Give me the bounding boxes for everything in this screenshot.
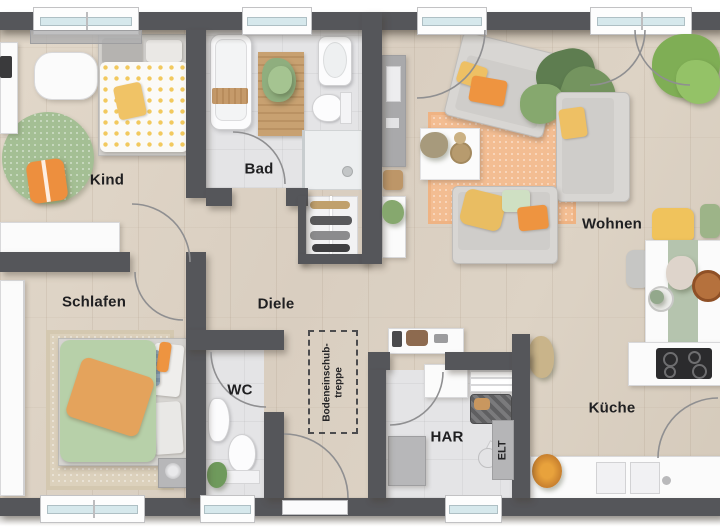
shoes-row-3	[310, 231, 350, 240]
entry-door-leaf	[282, 500, 348, 515]
wall-niche-left	[298, 196, 306, 262]
wall-kind-bad	[186, 30, 206, 198]
bad-shower-glass	[302, 130, 305, 188]
bad-shower-drain	[342, 166, 353, 177]
window-wohnen-left-glass	[422, 17, 482, 26]
label-kind: Kind	[90, 172, 124, 189]
wall-bad-wohnen	[362, 12, 382, 264]
label-kueche: Küche	[589, 400, 636, 417]
kitchen-dried-plant	[528, 336, 554, 378]
bathtub-caddy	[212, 88, 248, 104]
dining-chair-yellow-top	[652, 208, 694, 240]
burner-4	[692, 364, 707, 379]
window-wohnen-left	[417, 7, 487, 35]
window-bad	[242, 7, 312, 35]
wall-wc-right-lower	[264, 412, 284, 498]
corner-plant-2	[676, 60, 720, 104]
centerpiece-bowl	[692, 270, 720, 302]
elt-panel: ELT	[492, 420, 514, 480]
shoes-row-2	[310, 216, 352, 225]
bad-towel-top	[268, 66, 292, 94]
kitchen-sink-basin-left	[596, 462, 626, 494]
window-kind-shade	[30, 30, 142, 44]
hall-shelf-plant	[382, 200, 404, 224]
attic-stairs-line2: treppe	[333, 343, 345, 421]
wall-wc-top	[186, 330, 284, 350]
window-har	[445, 495, 502, 523]
window-wc-glass	[204, 505, 251, 514]
har-washer	[388, 436, 426, 486]
label-diele: Diele	[258, 296, 295, 313]
shoes-row-1	[310, 201, 350, 209]
kind-sideboard	[0, 222, 120, 256]
elt-label: ELT	[497, 440, 510, 460]
label-wohnen: Wohnen	[582, 216, 642, 233]
bad-shower-tray	[304, 130, 362, 190]
hall-stool-wood	[383, 170, 403, 190]
window-wc	[200, 495, 255, 523]
window-schlafen	[40, 495, 145, 523]
window-har-glass	[449, 505, 497, 514]
attic-stairs-line1: Bodeneinschub-	[322, 343, 334, 421]
nightstand-lamp	[165, 463, 181, 479]
console-item-gray	[434, 334, 448, 343]
attic-stairs-label: Bodeneinschub- treppe	[322, 343, 345, 421]
wall-har-top-left	[368, 352, 390, 370]
wc-sink	[208, 398, 230, 442]
wall-schlafen-diele	[186, 252, 206, 498]
schlafen-wardrobe	[0, 280, 25, 496]
bad-sink-basin	[323, 42, 347, 78]
window-kind-mullion	[86, 12, 88, 30]
burner-1	[663, 352, 678, 367]
coffee-table-plant	[420, 132, 448, 158]
wall-har-left	[368, 370, 386, 498]
dining-napkin	[650, 290, 664, 304]
dining-chair-green-top	[700, 204, 720, 238]
coffee-table-bowl-2	[454, 132, 466, 144]
window-wohnen-right-mullion	[641, 12, 643, 30]
coffee-table-bowl-1	[450, 142, 472, 164]
floor-plan: ELT Bodeneinschub- treppe	[0, 0, 720, 530]
wall-har-kueche	[512, 334, 530, 498]
counter-bouquet	[532, 454, 562, 488]
window-schlafen-mullion	[93, 500, 95, 518]
window-bad-glass	[247, 17, 307, 26]
burner-2	[664, 366, 676, 378]
bad-toilet-bowl	[312, 94, 342, 122]
console-item-dark	[392, 331, 402, 347]
label-wc: WC	[227, 382, 252, 399]
burner-3	[688, 351, 701, 364]
label-bad: Bad	[245, 161, 274, 178]
wall-bad-bottom-left	[206, 188, 232, 206]
window-wohnen-right	[590, 7, 692, 35]
wall-niche-bottom	[298, 254, 368, 264]
sofa-right-pillow-yellow	[558, 106, 588, 139]
bathtub-inner	[215, 39, 247, 121]
kitchen-faucet	[662, 476, 671, 485]
wall-kind-schlafen	[0, 252, 130, 272]
hall-console-deco-1	[386, 66, 401, 102]
kind-laptop	[0, 56, 12, 78]
kitchen-sink-basin-right	[630, 462, 660, 494]
label-schlafen: Schlafen	[62, 294, 126, 311]
wc-toilet-bowl	[228, 434, 256, 472]
hall-console-deco-2	[386, 118, 399, 128]
shoes-row-4	[312, 244, 350, 252]
har-basket-towel	[474, 398, 490, 410]
console-item-bag	[406, 330, 428, 346]
bad-toilet-tank	[340, 92, 352, 124]
wc-toilet-tank	[224, 470, 260, 484]
sofa-bottom-pillow-orange	[517, 204, 549, 231]
attic-stairs-box: Bodeneinschub- treppe	[308, 330, 358, 434]
label-har: HAR	[430, 429, 463, 446]
kind-desk-chair	[34, 52, 98, 100]
